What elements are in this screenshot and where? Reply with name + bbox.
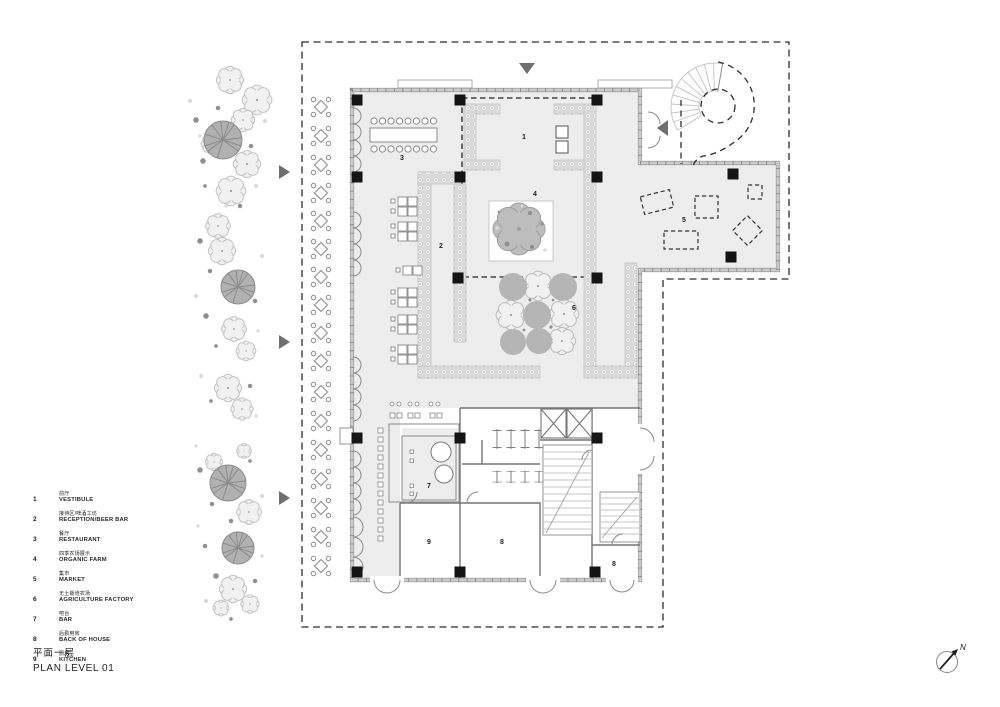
room-label-8b: 8 (612, 561, 616, 568)
floor-plan-sheet: 1 2 3 4 5 6 7 8 8 9 N 1 前厅 VESTIBULE 2 接… (0, 0, 1000, 707)
legend-number: 1 (33, 491, 59, 503)
plan-title-zh: 平面一层 (33, 645, 114, 659)
legend-label-en: RESTAURANT (59, 537, 101, 544)
legend-item: 1 前厅 VESTIBULE (33, 491, 134, 504)
room-label-9: 9 (427, 539, 431, 546)
room-label-4: 4 (533, 191, 537, 198)
elevators (541, 409, 592, 438)
legend-item: 7 吧台 BAR (33, 611, 134, 624)
legend-item: 3 餐厅 RESTAURANT (33, 531, 134, 544)
legend-item: 8 后勤用房 BACK OF HOUSE (33, 631, 134, 644)
legend-label-en: ORGANIC FARM (59, 557, 107, 564)
entrance-arrow-west-2 (279, 335, 290, 349)
legend-label-en: BACK OF HOUSE (59, 637, 110, 644)
entrance-arrow-east (657, 120, 668, 136)
legend-number: 5 (33, 571, 59, 583)
room-label-3: 3 (400, 155, 404, 162)
legend-number: 8 (33, 631, 59, 643)
title-block: 平面一层 PLAN LEVEL 01 (33, 645, 114, 674)
canopies (398, 80, 672, 88)
room-label-6: 6 (572, 305, 576, 312)
legend-item: 4 四季农场展示 ORGANIC FARM (33, 551, 134, 564)
organic-farm-planter (489, 201, 553, 261)
room-label-2: 2 (439, 243, 443, 250)
room-label-1: 1 (522, 134, 526, 141)
legend-number: 3 (33, 531, 59, 543)
legend-label-en: VESTIBULE (59, 497, 93, 504)
outdoor-table-column (311, 97, 330, 575)
legend-number: 2 (33, 511, 59, 523)
north-arrow: N (937, 643, 967, 673)
plan-title-en: PLAN LEVEL 01 (33, 663, 114, 674)
legend-number: 6 (33, 591, 59, 603)
legend-label-en: RECEPTION/BEER BAR (59, 517, 128, 524)
north-label: N (960, 643, 966, 652)
legend-item: 5 集市 MARKET (33, 571, 134, 584)
agriculture-circles (496, 271, 579, 355)
legend-number: 4 (33, 551, 59, 563)
legend-item: 2 接待区/啤酒工坊 RECEPTION/BEER BAR (33, 511, 134, 524)
entrance-arrow-top (519, 63, 535, 74)
floor-plan-drawing: 1 2 3 4 5 6 7 8 8 9 N (0, 0, 1000, 707)
legend-number: 7 (33, 611, 59, 623)
legend-item: 6 无土栽培农场 AGRICULTURE FACTORY (33, 591, 134, 604)
room-label-7: 7 (427, 483, 431, 490)
stair-main (543, 445, 592, 535)
legend: 1 前厅 VESTIBULE 2 接待区/啤酒工坊 RECEPTION/BEER… (33, 491, 134, 671)
entrance-arrow-west-3 (279, 491, 290, 505)
legend-label-en: MARKET (59, 577, 85, 584)
wall-pier (340, 428, 353, 444)
legend-label-en: AGRICULTURE FACTORY (59, 597, 134, 604)
room-label-8: 8 (500, 539, 504, 546)
spiral-stair (671, 63, 723, 130)
entrance-arrow-west-1 (279, 165, 290, 179)
legend-label-en: BAR (59, 617, 72, 624)
room-label-5: 5 (682, 217, 686, 224)
